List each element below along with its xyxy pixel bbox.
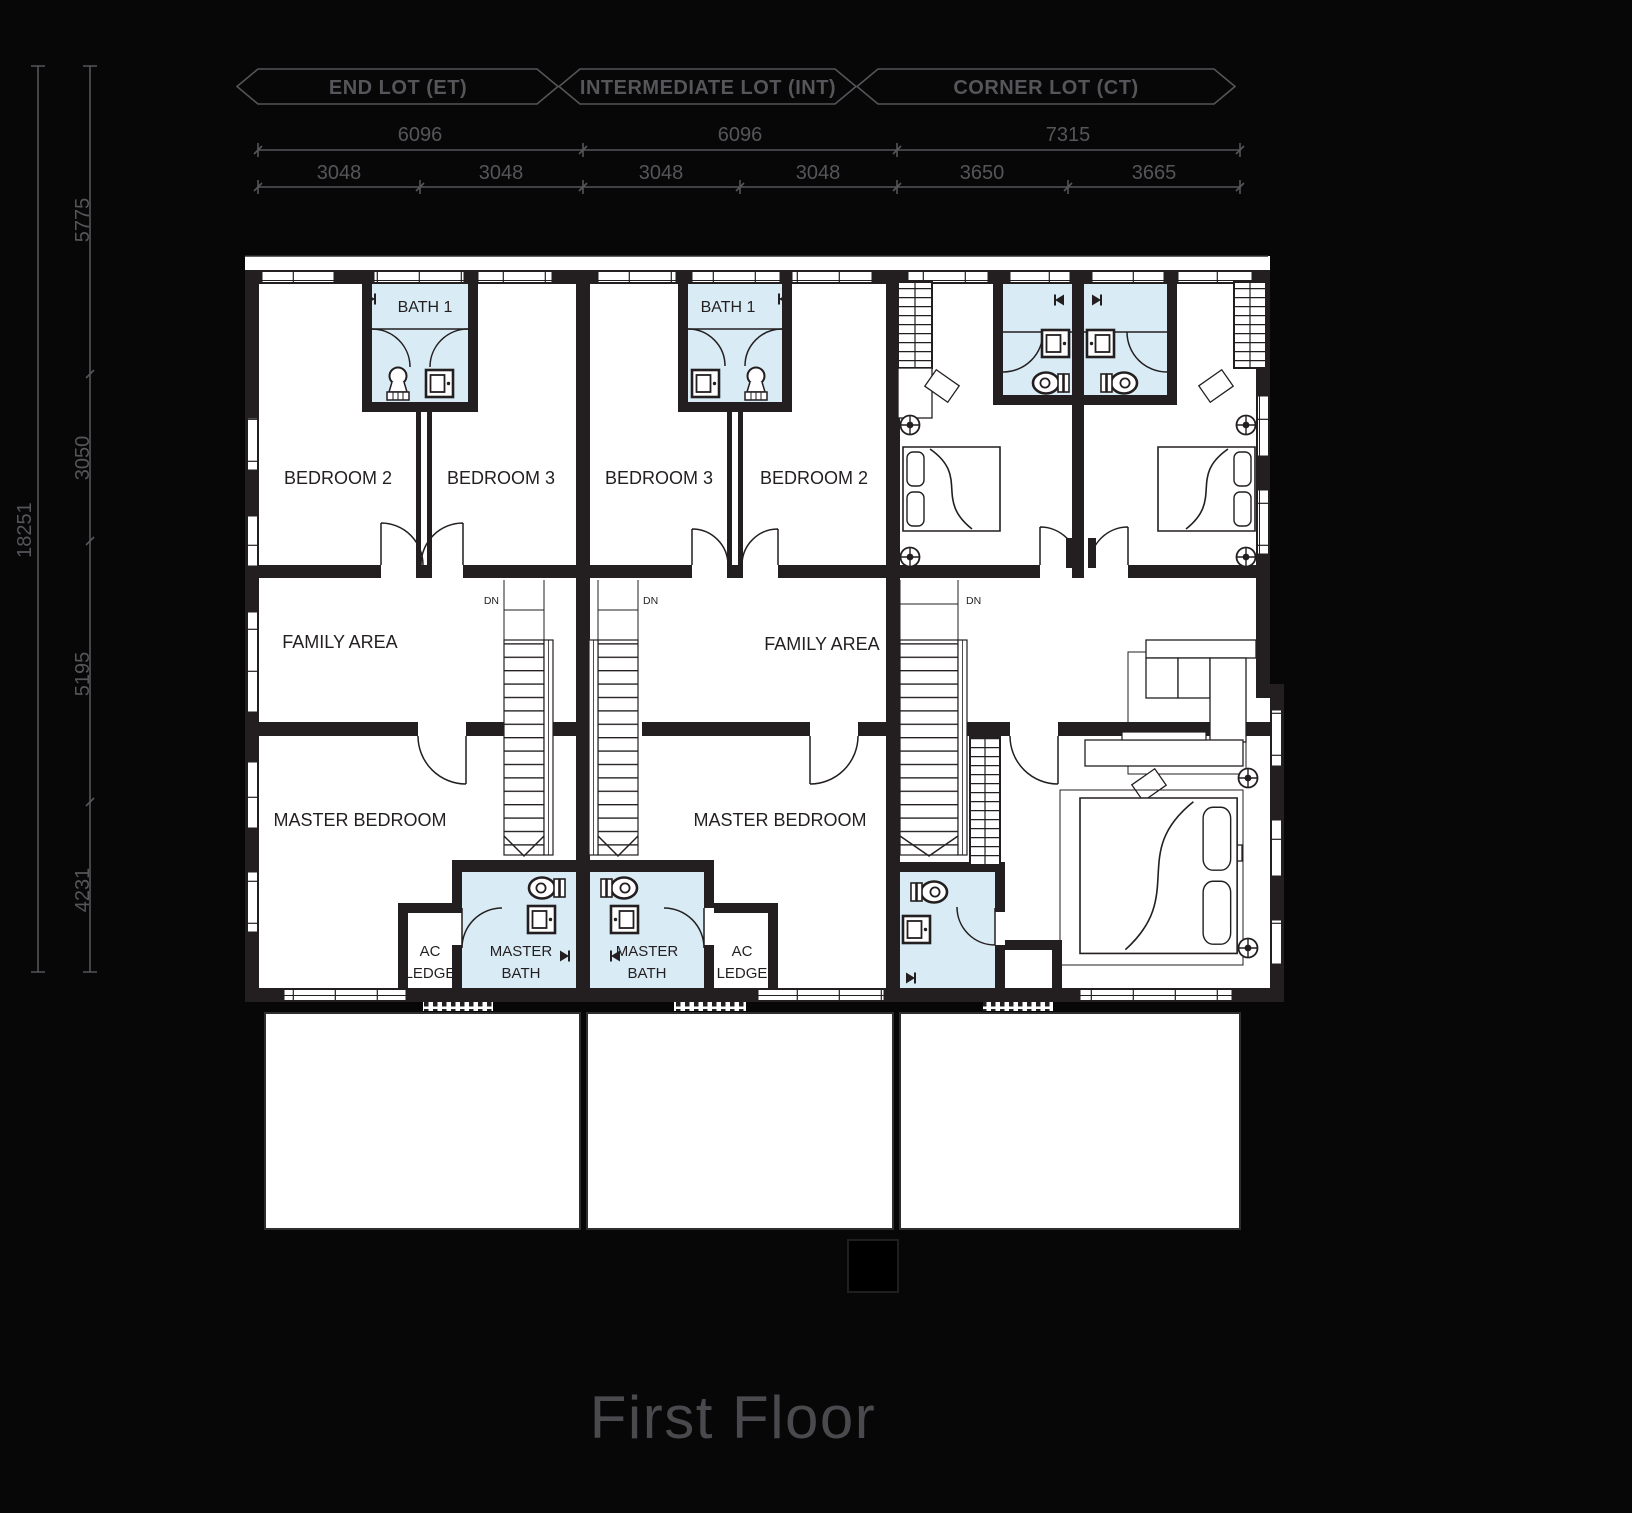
bath1-label: BATH 1 [398,299,453,316]
left-dimensions: 18251 5775 3050 5195 4231 [14,66,97,972]
lamp-icon [1239,769,1258,788]
toilet-icon [426,370,453,397]
banner-end-lot: END LOT (ET) [329,77,467,99]
toilet-icon [911,882,947,903]
master-bedroom-label: MASTER BEDROOM [273,810,446,830]
floor-plan-drawing: BATH 1 BATH 1 BEDROOM 2 BEDROOM 3 BEDROO… [0,0,1632,1513]
dim-overall-3: 7315 [1046,124,1091,146]
ac-ledge-label: LEDGE [717,965,768,982]
dim-overall-1: 6096 [398,124,443,146]
dim-seg-6: 3665 [1132,162,1177,184]
master-bedroom-label: MASTER BEDROOM [693,810,866,830]
master-bath-label: MASTER [616,943,679,960]
dim-seg-1: 3048 [317,162,362,184]
bedroom-label: BEDROOM 2 [760,468,868,488]
bedroom-label: BEDROOM 2 [284,468,392,488]
bath1-label: BATH 1 [701,299,756,316]
desk-icon [898,368,932,418]
bed-icon [903,447,1000,531]
toilet-icon [529,878,565,899]
sink-icon [528,906,555,933]
sink-icon [903,916,930,943]
dim-overall-height: 18251 [14,502,36,558]
stair-dn-label: DN [484,595,499,607]
master-bath-label: BATH [502,965,541,982]
dim-overall-2: 6096 [718,124,763,146]
family-area-label: FAMILY AREA [764,634,879,654]
stair-dn-label: DN [643,595,658,607]
sink-icon [1042,330,1069,357]
banner-intermediate-lot: INTERMEDIATE LOT (INT) [580,77,836,99]
toilet-icon [1101,373,1137,394]
dresser-icon [1085,740,1243,766]
louvre-strips [423,1002,1053,1011]
bed-icon [1080,798,1237,953]
lamp-icon [901,416,920,435]
lamp-icon [1237,416,1256,435]
dim-seg-4: 3048 [796,162,841,184]
sofa-icon [1146,640,1256,658]
ac-ledge-label: LEDGE [405,965,456,982]
lamp-icon [901,548,920,567]
lot-banners: END LOT (ET) INTERMEDIATE LOT (INT) CORN… [237,69,1235,104]
floor-plan-sheet: BATH 1 BATH 1 BEDROOM 2 BEDROOM 3 BEDROO… [0,0,1632,1513]
bedroom-label: BEDROOM 3 [605,468,713,488]
dim-seg-5: 3650 [960,162,1005,184]
family-area-label: FAMILY AREA [282,632,397,652]
toilet-icon [601,878,637,899]
sink-icon [611,906,638,933]
dim-seg-3: 3048 [639,162,684,184]
top-dimensions: 6096 6096 7315 3048 3048 3048 3048 3650 … [254,124,1244,194]
dim-seg-2: 3048 [479,162,524,184]
ac-ledge-label: AC [732,943,753,960]
master-bath-label: MASTER [490,943,553,960]
ac-ledge-label: AC [420,943,441,960]
dim-left-seg-2: 3050 [72,436,94,481]
toilet-icon [692,370,719,397]
page-title: First Floor [590,1384,877,1451]
bed-icon [1158,447,1255,531]
porch-roof-outlines [265,1013,1240,1292]
column-marker [848,1240,898,1292]
banner-corner-lot: CORNER LOT (CT) [953,77,1138,99]
stair-dn-label: DN [966,595,981,607]
dim-left-seg-4: 4231 [72,868,94,913]
dim-left-seg-3: 5195 [72,652,94,697]
master-bath-label: BATH [628,965,667,982]
sink-icon [1087,330,1114,357]
lamp-icon [1239,939,1258,958]
dim-left-seg-1: 5775 [72,198,94,243]
lamp-icon [1237,548,1256,567]
bedroom-label: BEDROOM 3 [447,468,555,488]
toilet-icon [1033,373,1069,394]
